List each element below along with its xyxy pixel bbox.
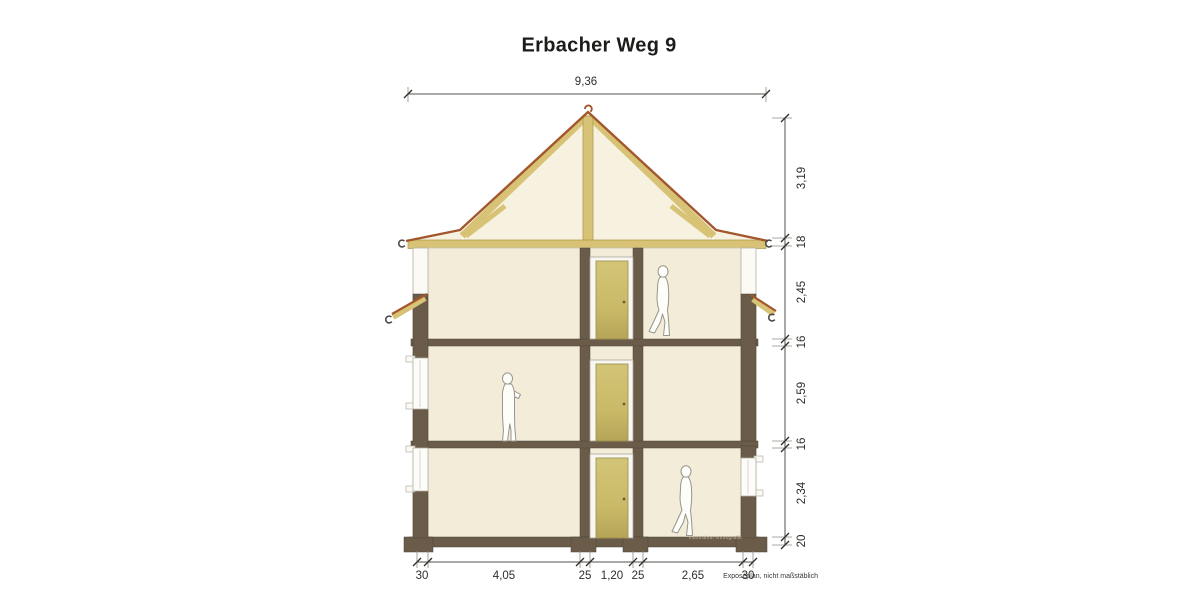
king-post (583, 116, 593, 242)
door-top-floor (590, 257, 633, 339)
ridge-ornament (585, 105, 592, 111)
building-body (386, 248, 776, 552)
window-right-ground (741, 456, 763, 496)
roof (399, 105, 772, 248)
dim-right-ground: 2,34 (796, 482, 808, 504)
dim-bottom-stairwell: 1,20 (601, 570, 623, 582)
watermark: illustration immografik (689, 535, 742, 541)
dim-right-topfloor: 2,45 (796, 281, 808, 303)
window-left-ground (406, 446, 428, 492)
footing (404, 537, 433, 552)
floor-slab-upper (411, 339, 758, 346)
dim-bottom-wall-left: 30 (416, 570, 429, 582)
gutter-left-icon (399, 240, 405, 247)
window-left-middle (406, 356, 428, 409)
stair-wall-right (633, 248, 643, 538)
building-section-drawing (0, 0, 1200, 600)
eaves-band (408, 240, 766, 249)
scale-note: Exposéplan, nicht maßstäblich (723, 573, 818, 580)
dim-bottom-room-left: 4,05 (493, 570, 515, 582)
door-knob (623, 498, 626, 501)
floor-slab-middle (411, 441, 758, 448)
dim-bottom-wall-stair2: 25 (632, 570, 645, 582)
dim-total-width: 9,36 (575, 76, 597, 88)
stair-wall-left (580, 248, 590, 538)
footing (571, 537, 596, 552)
gutter-right-icon (766, 240, 772, 247)
dim-right-eaves: 18 (796, 236, 808, 249)
dim-right-baseslab: 20 (796, 535, 808, 548)
dim-right-slab2: 16 (796, 438, 808, 451)
dim-bottom-wall-stair1: 25 (579, 570, 592, 582)
door-knob (623, 403, 626, 406)
door-knob (623, 301, 626, 304)
exposé-plan-page: Erbacher Weg 9 (0, 0, 1200, 600)
dim-right-midfloor: 2,59 (796, 382, 808, 404)
dim-right-roof: 3,19 (796, 167, 808, 189)
dim-bottom-room-right: 2,65 (682, 570, 704, 582)
dim-right-slab1: 16 (796, 336, 808, 349)
stairwell-doors (590, 257, 633, 538)
door-ground-floor (590, 454, 633, 538)
door-middle-floor (590, 360, 633, 441)
footing (623, 537, 648, 552)
